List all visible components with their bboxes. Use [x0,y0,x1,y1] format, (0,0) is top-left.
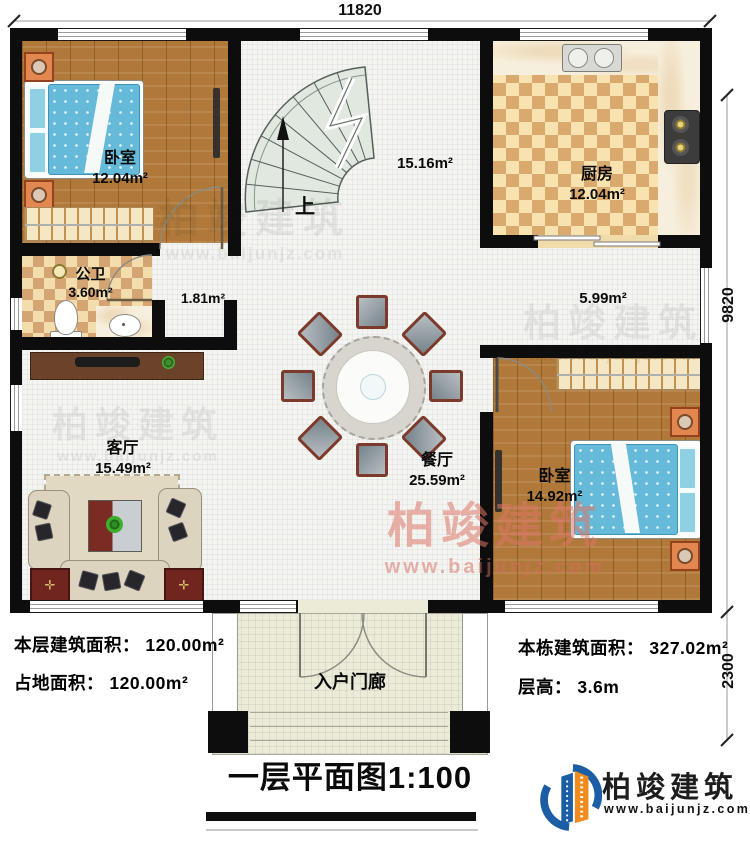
room-area-bedroom2: 14.92m² [502,488,607,505]
title-underline-thin [206,829,478,831]
info-block-left: 本层建筑面积： 120.00m² 占地面积： 120.00m² [14,632,224,695]
room-label-bedroom1: 卧室 [60,150,180,168]
room-label-kitchen: 厨房 [537,166,657,184]
dimension-top: 11820 [318,2,402,20]
room-label-dining: 餐厅 [392,452,482,470]
plan-title: 一层平面图1:100 [185,752,515,797]
info-total-area: 本栋建筑面积： 327.02m² [518,635,728,660]
room-label-living: 客厅 [75,440,170,458]
info-block-right: 本栋建筑面积： 327.02m² 层高： 3.6m [518,635,728,699]
room-label-bedroom2: 卧室 [502,468,607,486]
logo-icon [540,762,602,832]
room-label-porch: 入户门廊 [288,672,412,693]
info-footprint-area: 占地面积： 120.00m² [14,670,224,695]
room-area-bedroom1: 12.04m² [60,170,180,187]
floor-plan-canvas: 卧室 12.04m² 15.16m² 厨房 12.04m² 公卫 3.60m² … [0,0,750,842]
stairs-up-label: 上 [290,196,320,219]
room-area-corridor-right: 5.99m² [558,290,648,307]
room-area-living: 15.49m² [68,460,178,477]
title-underline [206,812,476,821]
spiral-staircase [245,67,374,212]
room-label-bathroom: 公卫 [43,266,138,283]
dimension-right-upper: 9820 [720,282,738,328]
door-swings [107,187,551,677]
room-area-kitchen: 12.04m² [537,186,657,203]
room-area-bathroom: 3.60m² [43,284,138,300]
company-logo: 柏竣建筑 www.baijunjz.com [540,760,746,838]
room-area-corridor-small: 1.81m² [163,290,243,306]
room-area-stair-hall: 15.16m² [375,155,475,172]
plan-linework [0,0,750,842]
room-area-dining: 25.59m² [382,472,492,489]
info-floor-height: 层高： 3.6m [518,674,728,699]
info-floor-area: 本层建筑面积： 120.00m² [14,632,224,657]
sliding-door [534,236,660,246]
logo-url: www.baijunjz.com [604,802,746,816]
logo-name: 柏竣建筑 [602,764,746,806]
